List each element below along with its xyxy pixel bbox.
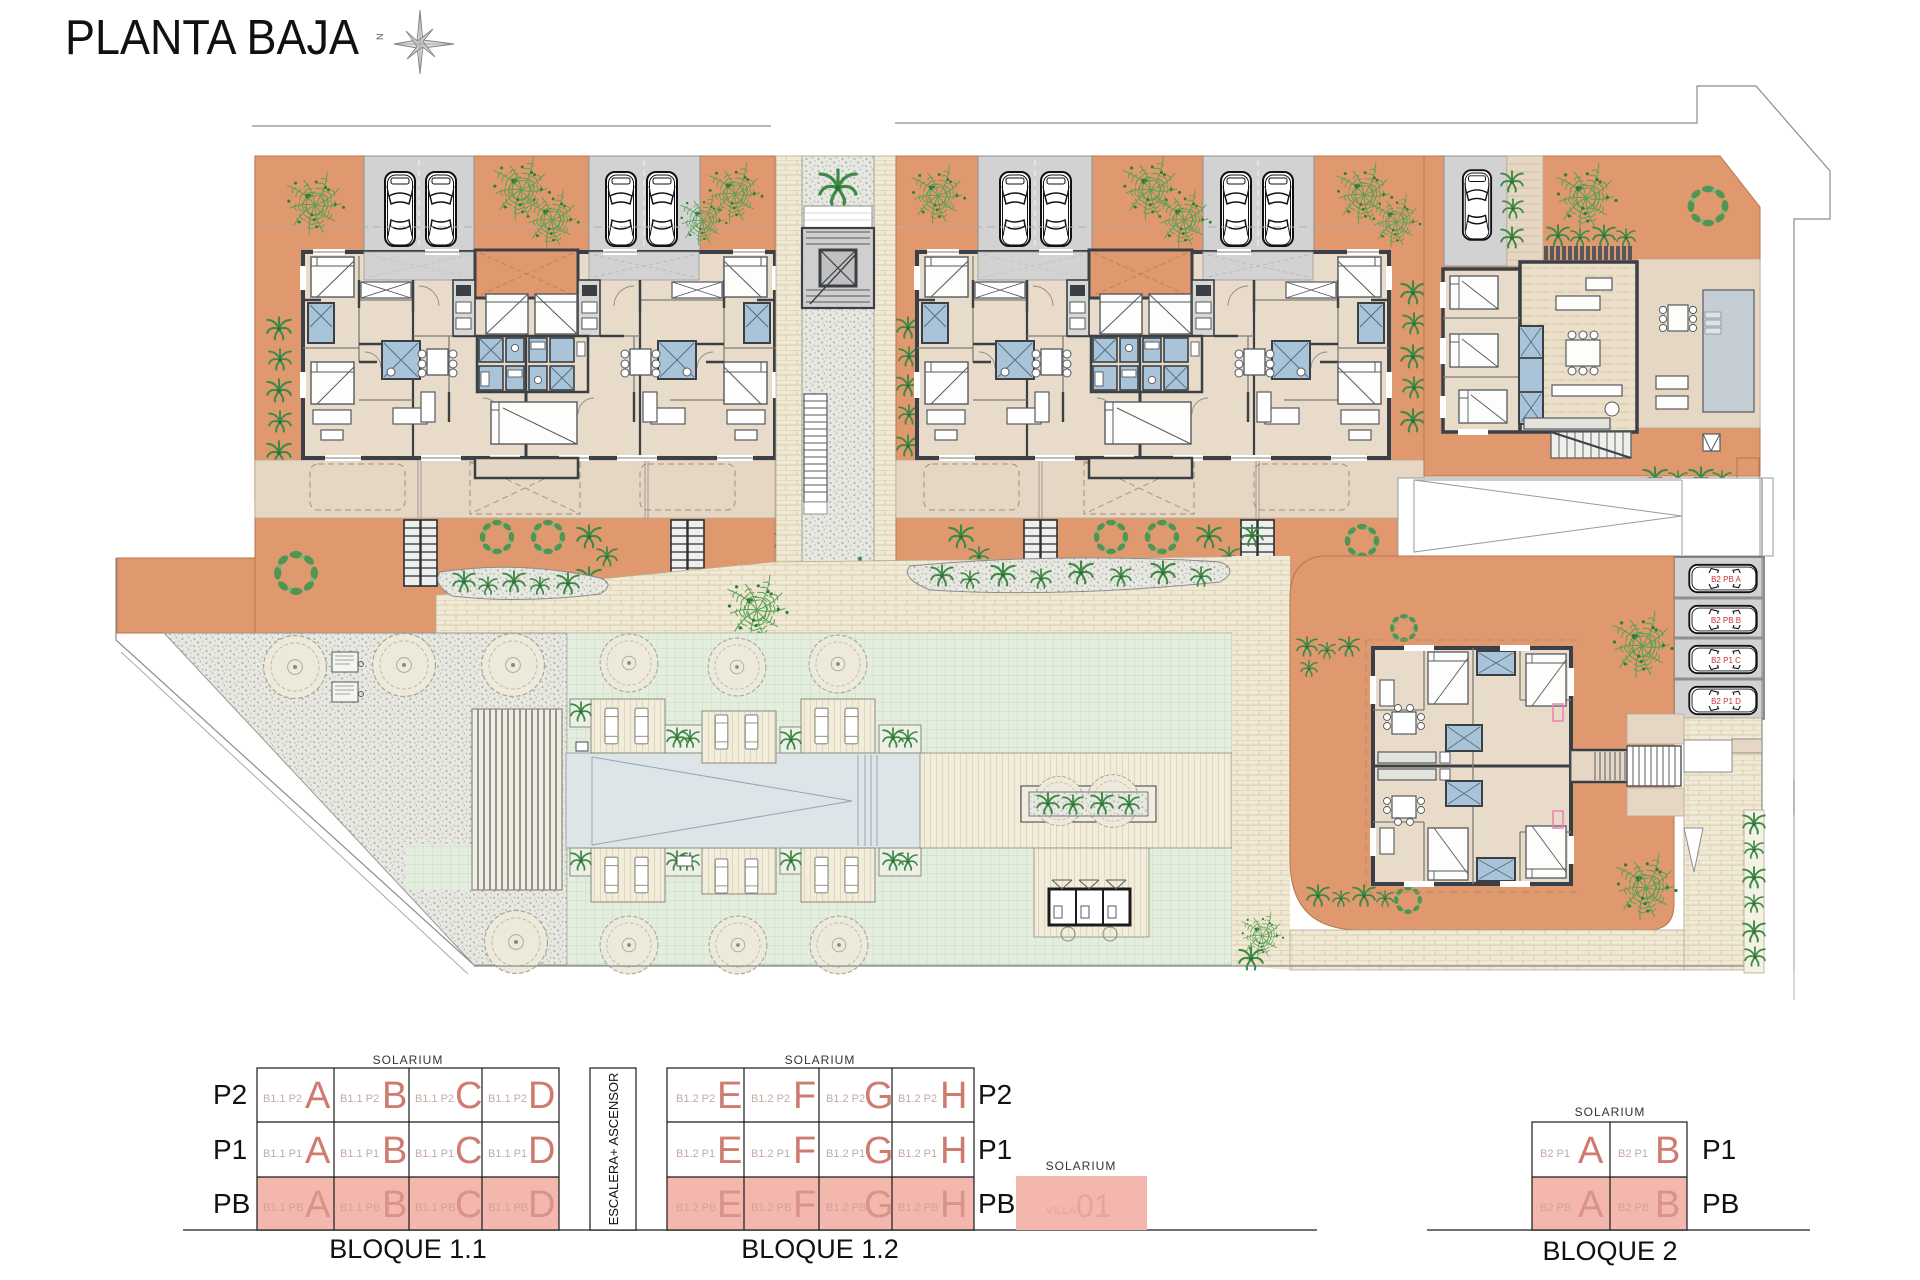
svg-text:B1.2 PB: B1.2 PB	[898, 1202, 938, 1214]
svg-text:H: H	[940, 1184, 967, 1226]
svg-text:B1.2 P1: B1.2 P1	[826, 1148, 865, 1160]
svg-text:B2 PB: B2 PB	[1618, 1202, 1649, 1214]
svg-text:P2: P2	[978, 1079, 1012, 1110]
svg-text:D: D	[528, 1075, 555, 1117]
svg-text:A: A	[305, 1075, 331, 1117]
svg-text:B: B	[382, 1130, 407, 1172]
svg-text:BLOQUE 1.2: BLOQUE 1.2	[741, 1234, 899, 1264]
svg-text:B2 P1 D: B2 P1 D	[1711, 697, 1741, 706]
svg-text:F: F	[793, 1184, 816, 1226]
svg-text:B1.2 PB: B1.2 PB	[751, 1202, 791, 1214]
svg-text:P1: P1	[1702, 1134, 1736, 1165]
svg-text:B1.2 P2: B1.2 P2	[676, 1093, 715, 1105]
svg-text:N: N	[375, 34, 385, 41]
svg-text:B: B	[1655, 1130, 1680, 1172]
svg-text:E: E	[717, 1184, 742, 1226]
svg-text:C: C	[455, 1184, 482, 1226]
svg-text:B: B	[382, 1184, 407, 1226]
svg-text:P1: P1	[213, 1134, 247, 1165]
svg-text:B1.1 P2: B1.1 P2	[263, 1093, 302, 1105]
svg-text:A: A	[1578, 1130, 1604, 1172]
svg-text:PB: PB	[1702, 1188, 1739, 1219]
svg-text:B1.1 P2: B1.1 P2	[340, 1093, 379, 1105]
svg-text:B1.2 P2: B1.2 P2	[751, 1093, 790, 1105]
svg-text:B1.1 PB: B1.1 PB	[263, 1202, 303, 1214]
svg-text:F: F	[793, 1075, 816, 1117]
svg-text:PB: PB	[213, 1188, 250, 1219]
svg-text:B2 P1: B2 P1	[1540, 1148, 1570, 1160]
svg-text:B1.1 PB: B1.1 PB	[340, 1202, 380, 1214]
svg-text:E: E	[717, 1130, 742, 1172]
svg-text:B1.1 P2: B1.1 P2	[488, 1093, 527, 1105]
svg-text:VILLA: VILLA	[1046, 1205, 1077, 1217]
svg-text:B1.2 P2: B1.2 P2	[898, 1093, 937, 1105]
svg-text:A: A	[305, 1130, 331, 1172]
svg-text:B1.2 P2: B1.2 P2	[826, 1093, 865, 1105]
svg-text:PB: PB	[978, 1188, 1015, 1219]
svg-text:B1.1 P1: B1.1 P1	[415, 1148, 454, 1160]
svg-text:D: D	[528, 1184, 555, 1226]
svg-text:B2 PB: B2 PB	[1540, 1202, 1571, 1214]
svg-text:B1.2 PB: B1.2 PB	[676, 1202, 716, 1214]
svg-text:B1.2 P1: B1.2 P1	[676, 1148, 715, 1160]
svg-text:SOLARIUM: SOLARIUM	[1046, 1159, 1117, 1173]
svg-text:B2 PB A: B2 PB A	[1711, 575, 1741, 584]
svg-text:B: B	[1655, 1184, 1680, 1226]
svg-text:B2 PB B: B2 PB B	[1711, 616, 1741, 625]
svg-text:SOLARIUM: SOLARIUM	[785, 1053, 856, 1067]
svg-text:P1: P1	[978, 1134, 1012, 1165]
svg-text:G: G	[864, 1184, 894, 1226]
svg-text:G: G	[864, 1130, 894, 1172]
svg-text:D: D	[528, 1130, 555, 1172]
svg-text:B2 P1 C: B2 P1 C	[1711, 656, 1741, 665]
svg-text:BLOQUE 2: BLOQUE 2	[1542, 1236, 1677, 1266]
svg-text:SOLARIUM: SOLARIUM	[373, 1053, 444, 1067]
svg-text:01: 01	[1076, 1188, 1112, 1224]
svg-text:B1.1 P1: B1.1 P1	[340, 1148, 379, 1160]
svg-text:ESCALERA+ ASCENSOR: ESCALERA+ ASCENSOR	[606, 1073, 621, 1226]
svg-text:P2: P2	[213, 1079, 247, 1110]
svg-text:B1.1 PB: B1.1 PB	[415, 1202, 455, 1214]
svg-text:G: G	[864, 1075, 894, 1117]
svg-text:F: F	[793, 1130, 816, 1172]
svg-text:B1.2 P1: B1.2 P1	[751, 1148, 790, 1160]
svg-text:B2 P1: B2 P1	[1618, 1148, 1648, 1160]
svg-text:B1.2 PB: B1.2 PB	[826, 1202, 866, 1214]
svg-text:B1.1 P1: B1.1 P1	[488, 1148, 527, 1160]
svg-text:PLANTA BAJA: PLANTA BAJA	[65, 11, 359, 65]
svg-text:C: C	[455, 1075, 482, 1117]
svg-text:B1.1 P2: B1.1 P2	[415, 1093, 454, 1105]
svg-text:A: A	[305, 1184, 331, 1226]
svg-text:A: A	[1578, 1184, 1604, 1226]
svg-text:B1.1 P1: B1.1 P1	[263, 1148, 302, 1160]
svg-text:B1.1 PB: B1.1 PB	[488, 1202, 528, 1214]
svg-text:C: C	[455, 1130, 482, 1172]
svg-text:B: B	[382, 1075, 407, 1117]
svg-text:BLOQUE 1.1: BLOQUE 1.1	[329, 1234, 487, 1264]
svg-text:H: H	[940, 1075, 967, 1117]
svg-text:B1.2 P1: B1.2 P1	[898, 1148, 937, 1160]
svg-text:E: E	[717, 1075, 742, 1117]
svg-text:SOLARIUM: SOLARIUM	[1575, 1105, 1646, 1119]
svg-text:H: H	[940, 1130, 967, 1172]
